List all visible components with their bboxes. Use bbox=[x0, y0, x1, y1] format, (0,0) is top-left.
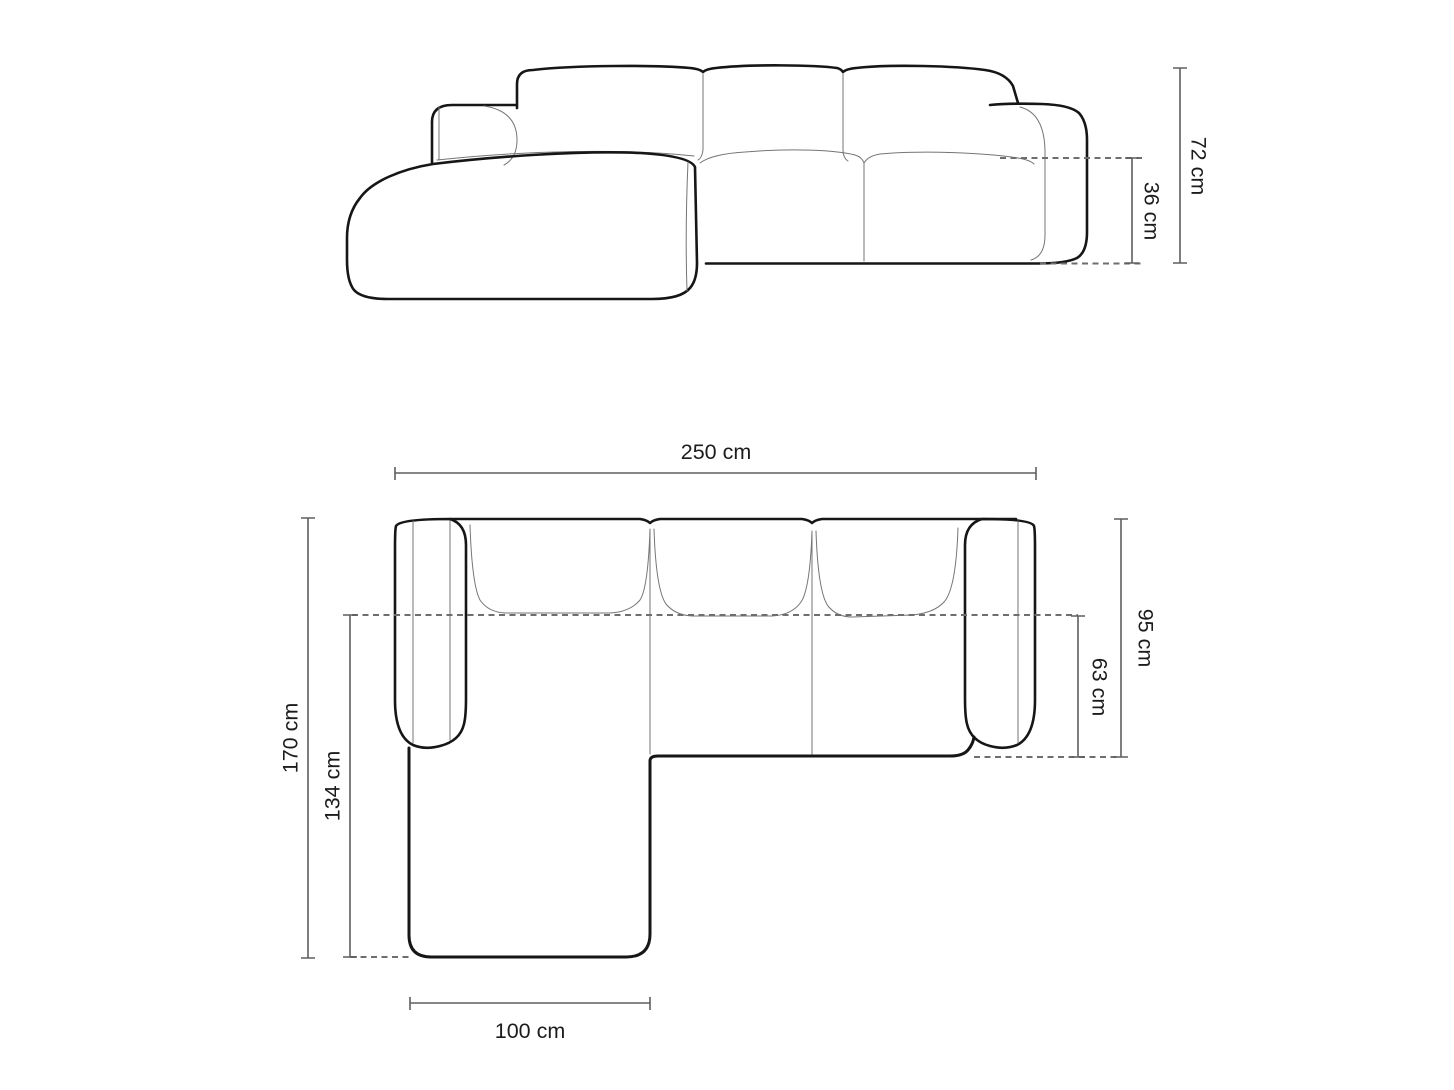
diagram-canvas: 72 cm 36 cm bbox=[0, 0, 1454, 1090]
dim-total-width-label: 250 cm bbox=[681, 440, 752, 464]
side-right-armrest-cap bbox=[1020, 107, 1045, 260]
dim-chaise-width-label: 100 cm bbox=[495, 1019, 566, 1043]
dim-total-width: 250 cm bbox=[395, 440, 1036, 480]
side-seat-cushions bbox=[700, 150, 1034, 164]
plan-seat-cushion-middle bbox=[654, 529, 812, 616]
plan-chaise-and-front-edge bbox=[409, 737, 974, 957]
side-right-armrest bbox=[706, 104, 1087, 264]
dim-chaise-depth-label: 134 cm bbox=[321, 751, 345, 822]
plan-backrest-edge bbox=[450, 519, 1016, 523]
dim-chaise-depth-line bbox=[343, 615, 357, 957]
side-chaise bbox=[347, 152, 697, 299]
dim-body-depth-label: 95 cm bbox=[1133, 609, 1157, 668]
dim-seat-depth: 63 cm bbox=[1071, 616, 1111, 757]
plan-left-armrest bbox=[395, 519, 466, 748]
dim-seat-height-label: 36 cm bbox=[1139, 182, 1163, 241]
sofa-plan-drawing bbox=[395, 519, 1035, 957]
side-dashed-guides bbox=[1000, 158, 1142, 264]
plan-right-armrest bbox=[965, 519, 1035, 748]
dim-chaise-width: 100 cm bbox=[410, 997, 650, 1043]
dim-total-height-line bbox=[1173, 68, 1187, 263]
side-back-seam-left bbox=[698, 74, 703, 160]
dim-seat-depth-line bbox=[1071, 616, 1085, 757]
dim-total-depth: 170 cm bbox=[279, 518, 315, 958]
sofa-dimension-diagram: 72 cm 36 cm bbox=[0, 0, 1454, 1090]
plan-seat-cushion-right bbox=[816, 528, 958, 617]
dim-chaise-depth: 134 cm bbox=[321, 615, 357, 957]
side-chaise-edge-seam bbox=[686, 162, 688, 291]
dim-body-depth-line bbox=[1114, 519, 1128, 757]
top-view: 250 cm 170 cm 134 cm 95 cm 63 cm 100 cm bbox=[279, 440, 1158, 1043]
dim-chaise-width-line bbox=[410, 997, 650, 1010]
sofa-side-drawing bbox=[347, 65, 1087, 299]
dim-seat-height-line bbox=[1125, 158, 1139, 263]
dim-total-depth-label: 170 cm bbox=[279, 703, 303, 774]
dim-seat-depth-label: 63 cm bbox=[1087, 658, 1111, 717]
dim-seat-height: 36 cm bbox=[1125, 158, 1163, 263]
side-view: 72 cm 36 cm bbox=[347, 65, 1210, 299]
side-back-seam-right bbox=[843, 74, 848, 161]
dim-body-depth: 95 cm bbox=[1114, 519, 1157, 757]
plan-seat-cushion-left bbox=[470, 525, 650, 613]
dim-total-height-label: 72 cm bbox=[1186, 137, 1210, 196]
dim-total-depth-line bbox=[301, 518, 315, 958]
dim-total-height: 72 cm bbox=[1173, 68, 1210, 263]
dim-total-width-line bbox=[395, 467, 1036, 480]
side-backrest-outline bbox=[517, 65, 1018, 108]
